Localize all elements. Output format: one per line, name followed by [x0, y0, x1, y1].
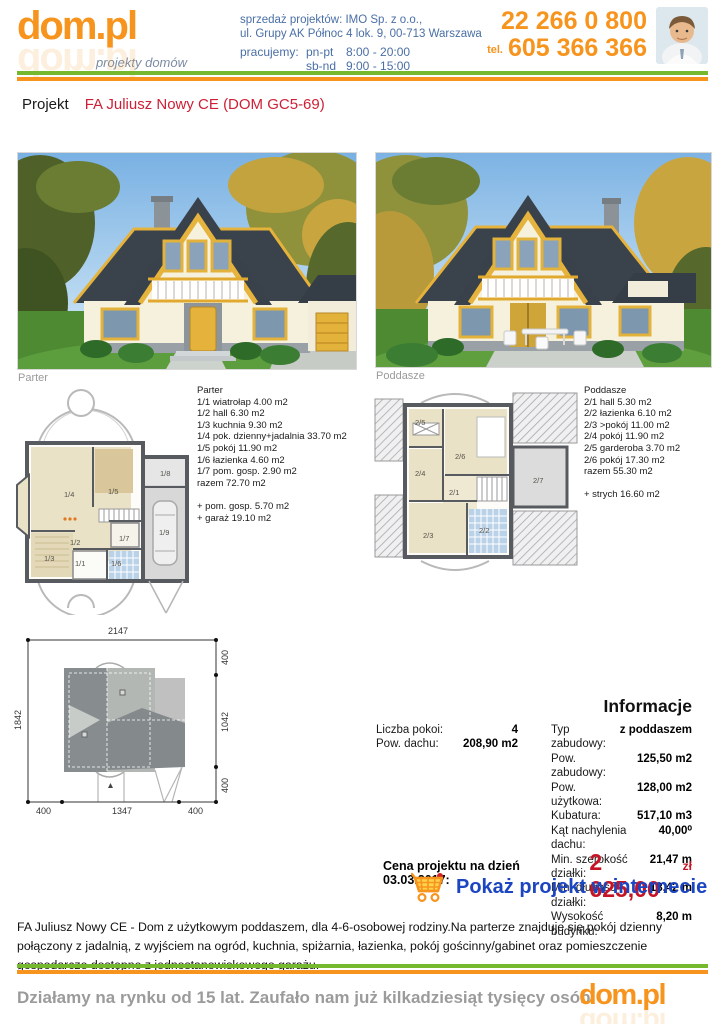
cart-icon [411, 872, 447, 903]
info-left-column: Liczba pokoi:4Pow. dachu:208,90 m2 [376, 723, 518, 752]
room-line: + strych 16.60 m2 [584, 489, 724, 501]
footer-logo-text: dom.pl [579, 981, 709, 1010]
room-line: + garaż 19.10 m2 [197, 513, 369, 525]
siteplan-drawing: 2147 1842 400 1042 400 400 1347 400 [12, 620, 234, 818]
parter-room-list: Parter1/1 wiatrołap 4.00 m21/2 hall 6.30… [197, 385, 369, 524]
sales-line-2: ul. Grupy AK Północ 4 lok. 9, 00-713 War… [240, 27, 482, 41]
dim-bottom-1: 400 [36, 806, 51, 816]
show-project-link[interactable]: Pokaż projekt w internecie [411, 872, 707, 903]
room-line: razem 72.70 m2 [197, 478, 369, 490]
info-title: Informacje [604, 696, 693, 717]
phone-mobile: 605 366 366 [508, 34, 647, 62]
tel-label: tel. [487, 44, 503, 56]
room-label: 1/2 [70, 538, 80, 547]
floorplan-parter: 1/1 1/2 1/3 1/4 1/5 1/6 1/7 1/8 1/9 [15, 383, 197, 615]
room-line: 2/5 garderoba 3.70 m2 [584, 443, 724, 455]
hours-label: pracujemy: [240, 45, 306, 73]
room-line: 1/3 kuchnia 9.30 m2 [197, 420, 369, 432]
room-label: 2/5 [415, 418, 425, 427]
room-line: 1/2 hall 6.30 m2 [197, 408, 369, 420]
info-row: Pow. zabudowy:125,50 m2 [551, 752, 692, 781]
dim-bottom-2: 1347 [112, 806, 132, 816]
room-line: 1/4 pok. dzienny+jadalnia 33.70 m2 [197, 431, 369, 443]
room-label: 1/7 [119, 534, 129, 543]
room-line: Parter [197, 385, 369, 397]
house-photo-front [17, 152, 357, 370]
room-label: 2/3 [423, 531, 433, 540]
poddasze-room-list: Poddasze2/1 hall 5.30 m22/2 łazienka 6.1… [584, 385, 724, 501]
project-label: Projekt [22, 96, 69, 113]
header-rule-green [17, 71, 708, 75]
room-label: 2/2 [479, 526, 489, 535]
weekday-label: pn-pt [306, 45, 346, 59]
header-rule-orange [17, 77, 708, 81]
footer-logo: dom.pl dom.pl [579, 981, 709, 1010]
header-contact-block: sprzedaż projektów: IMO Sp. z o.o., ul. … [240, 13, 482, 73]
room-label: 1/5 [108, 487, 118, 496]
dim-right-3: 400 [220, 778, 230, 793]
footer-rule-green [17, 964, 708, 968]
info-row: Liczba pokoi:4 [376, 723, 518, 737]
page: dom.pl dom.pl projekty domów sprzedaż pr… [0, 0, 725, 1024]
dim-top: 2147 [108, 626, 128, 636]
logo-text: dom.pl [17, 6, 187, 46]
info-label: Pow. użytkowa: [551, 781, 629, 810]
room-line: + pom. gosp. 5.70 m2 [197, 501, 369, 513]
consultant-photo [656, 7, 708, 64]
room-label: 1/3 [44, 554, 54, 563]
info-row: Kubatura:517,10 m3 [551, 809, 692, 823]
info-label: Liczba pokoi: [376, 723, 443, 737]
info-label: Pow. zabudowy: [551, 752, 629, 781]
room-line: 1/6 łazienka 4.60 m2 [197, 455, 369, 467]
weekday-hours: 8:00 - 20:00 [346, 45, 410, 59]
info-value: 128,00 m2 [637, 781, 692, 810]
project-name: FA Juliusz Nowy CE (DOM GC5-69) [85, 96, 325, 113]
room-label: 1/6 [111, 559, 121, 568]
room-line: 2/1 hall 5.30 m2 [584, 397, 724, 409]
logo-tagline: projekty domów [17, 55, 187, 70]
sales-line-1: sprzedaż projektów: IMO Sp. z o.o., [240, 13, 482, 27]
room-line: razem 55.30 m2 [584, 466, 724, 478]
room-line: 2/2 łazienka 6.10 m2 [584, 408, 724, 420]
dim-bottom-3: 400 [188, 806, 203, 816]
room-label: 1/4 [64, 490, 74, 499]
footer-rule-orange [17, 970, 708, 974]
opening-hours: pracujemy: pn-pt8:00 - 20:00 sb-nd9:00 -… [240, 45, 482, 73]
info-row: Pow. dachu:208,90 m2 [376, 737, 518, 751]
room-label: 2/1 [449, 488, 459, 497]
info-row: Typ zabudowy:z poddaszem [551, 723, 692, 752]
project-title-row: ProjektFA Juliusz Nowy CE (DOM GC5-69) [22, 96, 325, 113]
phone-block: 22 266 0 800 tel.605 366 366 [487, 8, 647, 64]
room-label: 1/9 [159, 528, 169, 537]
room-line [197, 489, 369, 501]
info-right-column: Typ zabudowy:z poddaszemPow. zabudowy:12… [551, 723, 692, 939]
dim-left: 1842 [13, 710, 23, 730]
info-value: 4 [512, 723, 518, 737]
info-value: 517,10 m3 [637, 809, 692, 823]
phone-main: 22 266 0 800 [487, 8, 647, 35]
room-label: 2/4 [415, 469, 425, 478]
dim-right-1: 400 [220, 650, 230, 665]
room-label: 1/8 [160, 469, 170, 478]
room-label: 2/7 [533, 476, 543, 485]
house-photo-rear [375, 152, 712, 368]
room-line [584, 478, 724, 490]
room-line: 2/4 pokój 11.90 m2 [584, 431, 724, 443]
info-value: 208,90 m2 [463, 737, 518, 751]
info-value: 125,50 m2 [637, 752, 692, 781]
info-row: Pow. użytkowa:128,00 m2 [551, 781, 692, 810]
room-line: 1/1 wiatrołap 4.00 m2 [197, 397, 369, 409]
room-label: 1/1 [75, 559, 85, 568]
info-value: z poddaszem [620, 723, 692, 752]
info-label: Pow. dachu: [376, 737, 439, 751]
room-line: 2/3 >pokój 11.00 m2 [584, 420, 724, 432]
photo-caption-poddasze: Poddasze [376, 370, 425, 382]
room-line: Poddasze [584, 385, 724, 397]
room-line: 1/5 pokój 11.90 m2 [197, 443, 369, 455]
info-label: Kubatura: [551, 809, 601, 823]
room-line: 1/7 pom. gosp. 2.90 m2 [197, 466, 369, 478]
info-label: Typ zabudowy: [551, 723, 612, 752]
floorplan-poddasze: 2/1 2/2 2/3 2/4 2/5 2/6 2/7 [373, 383, 580, 615]
dim-right-2: 1042 [220, 712, 230, 732]
room-label: 2/6 [455, 452, 465, 461]
price-currency: zł [683, 859, 692, 873]
room-line: 2/6 pokój 17.30 m2 [584, 455, 724, 467]
show-project-link-label: Pokaż projekt w internecie [456, 876, 707, 899]
header-logo: dom.pl dom.pl projekty domów [17, 6, 187, 70]
footer-slogan: Działamy na rynku od 15 lat. Zaufało nam… [17, 988, 595, 1008]
